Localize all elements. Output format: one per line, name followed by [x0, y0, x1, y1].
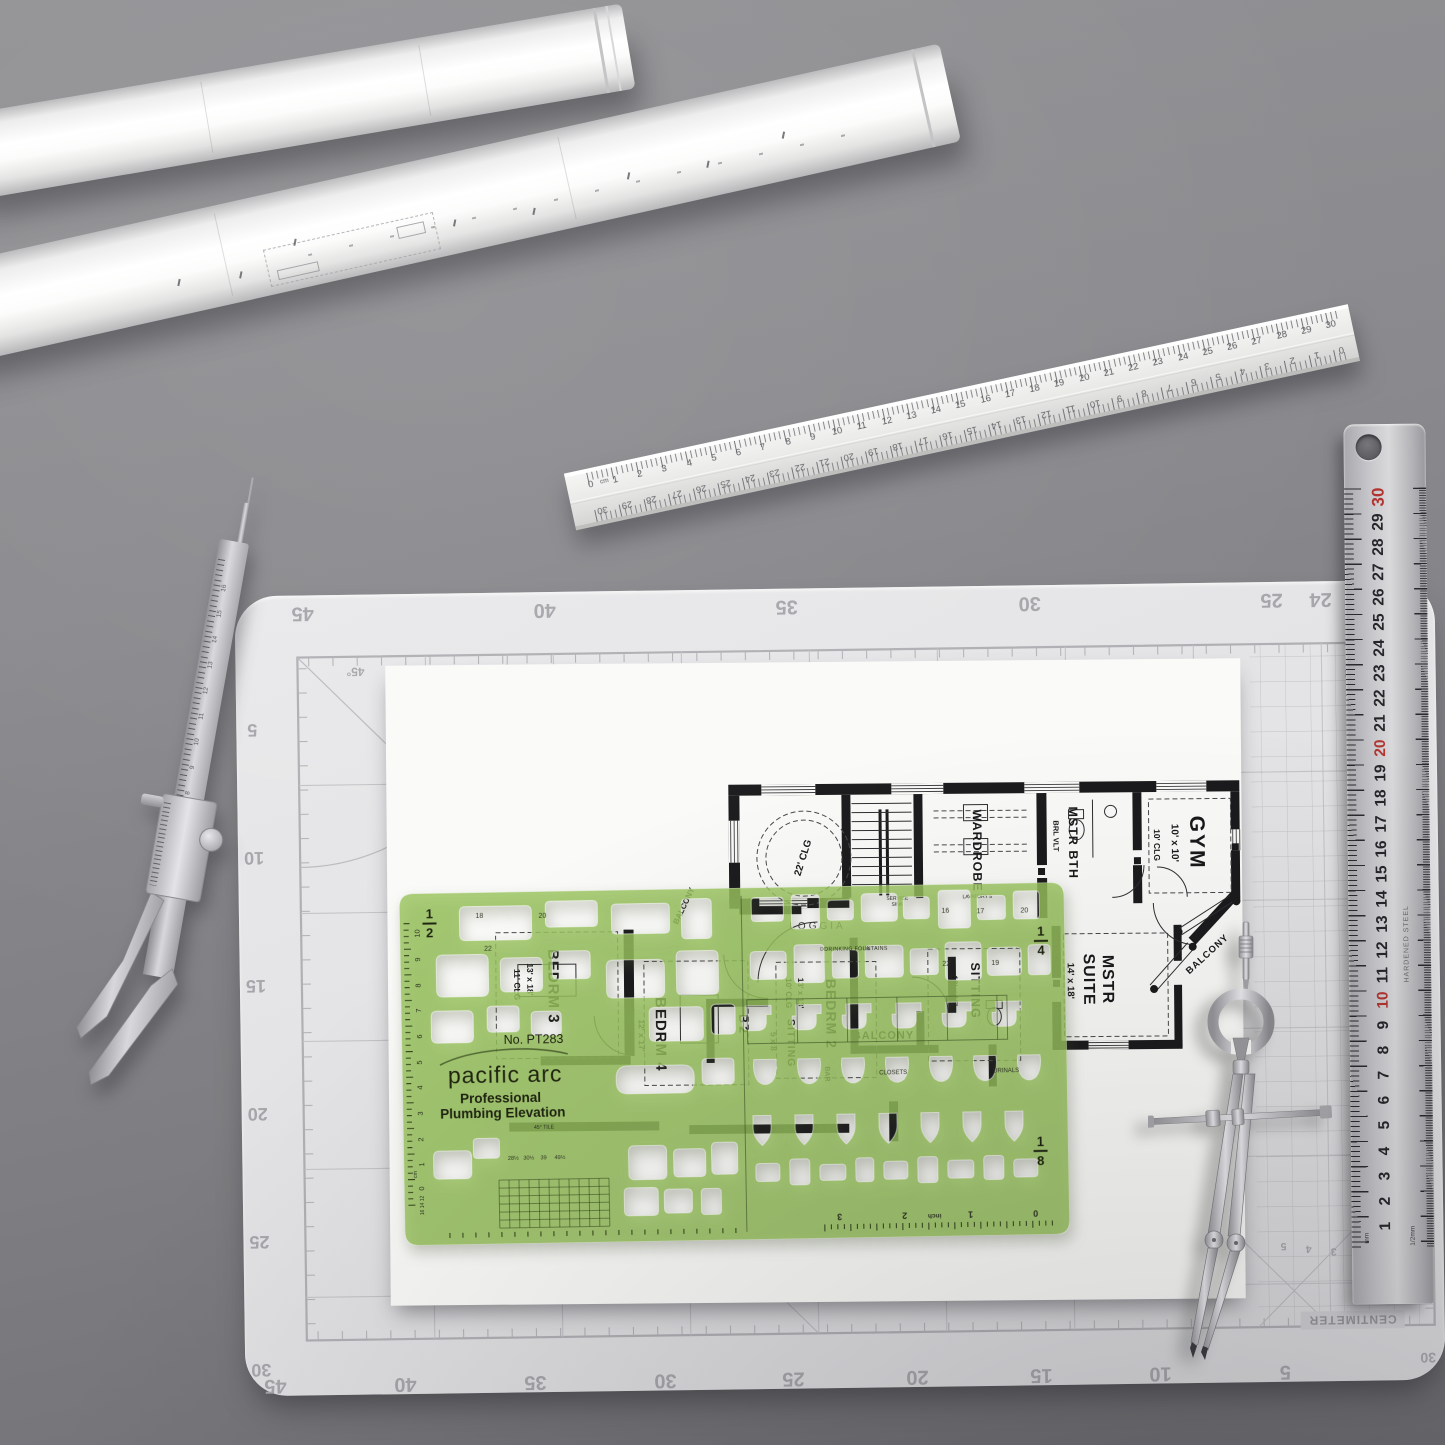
scale-number: 28 [645, 493, 657, 505]
ruler-number: 27 [1371, 563, 1387, 580]
scale-number: 4 [1239, 366, 1246, 376]
template-scale-fraction: 18 [1031, 1134, 1050, 1168]
template-scale-fraction: 12 [420, 906, 439, 940]
steel-ruler: 1234567891011121314151617181920212223242… [1343, 424, 1434, 1305]
ruler-number: 10 [1376, 991, 1392, 1008]
ruler-number: 26 [1371, 588, 1387, 605]
caliper-number: 10 [194, 738, 202, 746]
ruler-number: 19 [1373, 764, 1389, 781]
caliper-number: 15 [217, 610, 225, 618]
scale-number: 15 [966, 424, 978, 436]
room-label: MSTR [1099, 955, 1115, 1004]
roll-seam [557, 137, 576, 219]
template-labels: 109876543210cm121416 1820221617202219 DR… [399, 882, 1070, 1246]
scale-number: 26 [695, 482, 707, 494]
scale-number: 22 [794, 461, 806, 473]
roll-mark [532, 208, 535, 215]
ruler-number: 28 [1371, 538, 1387, 555]
template-product-line2: Plumbing Elevation [440, 1104, 566, 1121]
caliper-number: 9 [190, 765, 197, 770]
ruler-number: 5 [1377, 1121, 1393, 1130]
room-label: 10' x 10' [1169, 824, 1179, 862]
room-label: 10' CLG [1152, 829, 1161, 861]
roll-mark [177, 279, 180, 286]
scale-number: 24 [744, 472, 756, 484]
scale-number: 1 [1313, 350, 1320, 360]
ruler-number: 22 [1372, 689, 1388, 706]
scale-number: 9 [1116, 392, 1123, 402]
steel-ruler-numbers: 1234567891011121314151617181920212223242… [1343, 424, 1434, 1305]
ruler-number: 29 [1371, 513, 1387, 530]
caliper-number: 11 [199, 713, 207, 721]
room-label: MSTR BTH [1066, 806, 1079, 879]
ruler-number: 4 [1377, 1147, 1393, 1156]
scale-number: 17 [917, 434, 929, 446]
room-label: 14' x 18' [1065, 963, 1075, 999]
mat-grid-number: 45° [346, 666, 364, 678]
ruler-number: 14 [1375, 890, 1391, 907]
ruler-number: 21 [1373, 714, 1389, 731]
template-product-line1: Professional [460, 1090, 541, 1106]
roll-end-cap [911, 49, 936, 147]
ruler-number: 17 [1374, 815, 1390, 832]
ruler-number: 30 [1370, 488, 1387, 507]
ruler-number: 2 [1378, 1197, 1394, 1206]
roll-mark [239, 271, 242, 278]
caliper-number: 16 [221, 584, 229, 592]
ruler-number: 8 [1376, 1046, 1392, 1055]
roll-mark [627, 172, 630, 179]
scale-number: 20 [842, 450, 854, 462]
scale-number: 8 [1140, 387, 1147, 397]
scale-number: 21 [818, 456, 830, 468]
ruler-number: 3 [1377, 1172, 1393, 1181]
scale-number: 27 [670, 488, 682, 500]
roll-drawing-titleblock [263, 212, 441, 287]
drawing-compass [1148, 918, 1333, 1373]
ruler-number: 13 [1375, 915, 1391, 932]
caliper-number: 14 [212, 636, 220, 644]
scale-number: 5 [1214, 371, 1221, 381]
scale-number: 25 [719, 477, 731, 489]
scale-number: 30 [596, 504, 608, 516]
scale-number: 0 [1338, 344, 1345, 354]
scene: 0cm1234567891011121314151617181920212223… [0, 0, 1445, 1445]
ruler-number: 1/2mm [1411, 1226, 1418, 1246]
ruler-number: 9 [1376, 1021, 1392, 1030]
roll-drawing-marks [308, 128, 874, 256]
roll-seam [200, 81, 213, 152]
ruler-number: mm [1365, 1233, 1372, 1244]
scale-ruler-bottom-numbers: 3029282726252423222120191817161514131211… [564, 304, 1360, 530]
scale-number: 7 [1166, 382, 1173, 392]
ruler-number: 20 [1373, 739, 1389, 756]
roll-seam [418, 45, 431, 116]
scale-number: 19 [867, 445, 879, 457]
scale-number: 10 [1089, 397, 1101, 409]
ruler-number: 23 [1372, 664, 1388, 681]
compass-drawing [1148, 918, 1333, 1373]
roll-mark [782, 131, 785, 138]
ruler-number: 12 [1375, 941, 1391, 958]
scale-number: 18 [891, 440, 903, 452]
scale-number: 6 [1190, 376, 1197, 386]
caliper-jaws [41, 860, 254, 1146]
ruler-number: 16 [1374, 840, 1390, 857]
scale-number: 12 [1040, 408, 1052, 420]
template-scale-fraction: 14 [1032, 924, 1051, 958]
ruler-number: 6 [1377, 1096, 1393, 1105]
ruler-number: 24 [1372, 639, 1388, 656]
room-label: BRL VLT [1052, 820, 1060, 851]
scale-number: 13 [1014, 413, 1026, 425]
roll-seam [214, 214, 233, 296]
scale-number: 16 [941, 429, 953, 441]
caliper-number: 12 [203, 687, 211, 695]
triangular-scale-ruler: 0cm1234567891011121314151617181920212223… [564, 304, 1360, 530]
ruler-number: 18 [1373, 789, 1389, 806]
scale-number: 23 [768, 466, 780, 478]
ruler-number: 11 [1375, 967, 1391, 984]
scale-number: 14 [990, 418, 1002, 430]
scale-number: 29 [621, 498, 633, 510]
template-model-number: No. PT283 [504, 1032, 564, 1047]
roll-end-cap [605, 6, 621, 91]
scale-number: 11 [1065, 402, 1077, 413]
template-brand-logo: pacific arc [448, 1061, 563, 1090]
scale-number: 3 [1263, 360, 1270, 370]
ruler-number: 15 [1374, 865, 1390, 882]
ruler-number: 25 [1372, 613, 1388, 630]
ruler-number: HARDENED STEEL [1403, 905, 1411, 982]
plumbing-template: 109876543210cm121416 1820221617202219 DR… [399, 882, 1070, 1246]
caliper-number: 8 [185, 791, 192, 796]
room-label: WARDROBE [970, 809, 983, 891]
ruler-number: 7 [1376, 1071, 1392, 1080]
ruler-number: 1 [1378, 1222, 1394, 1231]
room-label: 22' CLG [794, 839, 815, 878]
room-label: SUITE [1080, 953, 1096, 1005]
caliper-number: 13 [208, 661, 216, 669]
room-label: GYM [1186, 816, 1207, 870]
scale-number: 2 [1289, 355, 1296, 365]
